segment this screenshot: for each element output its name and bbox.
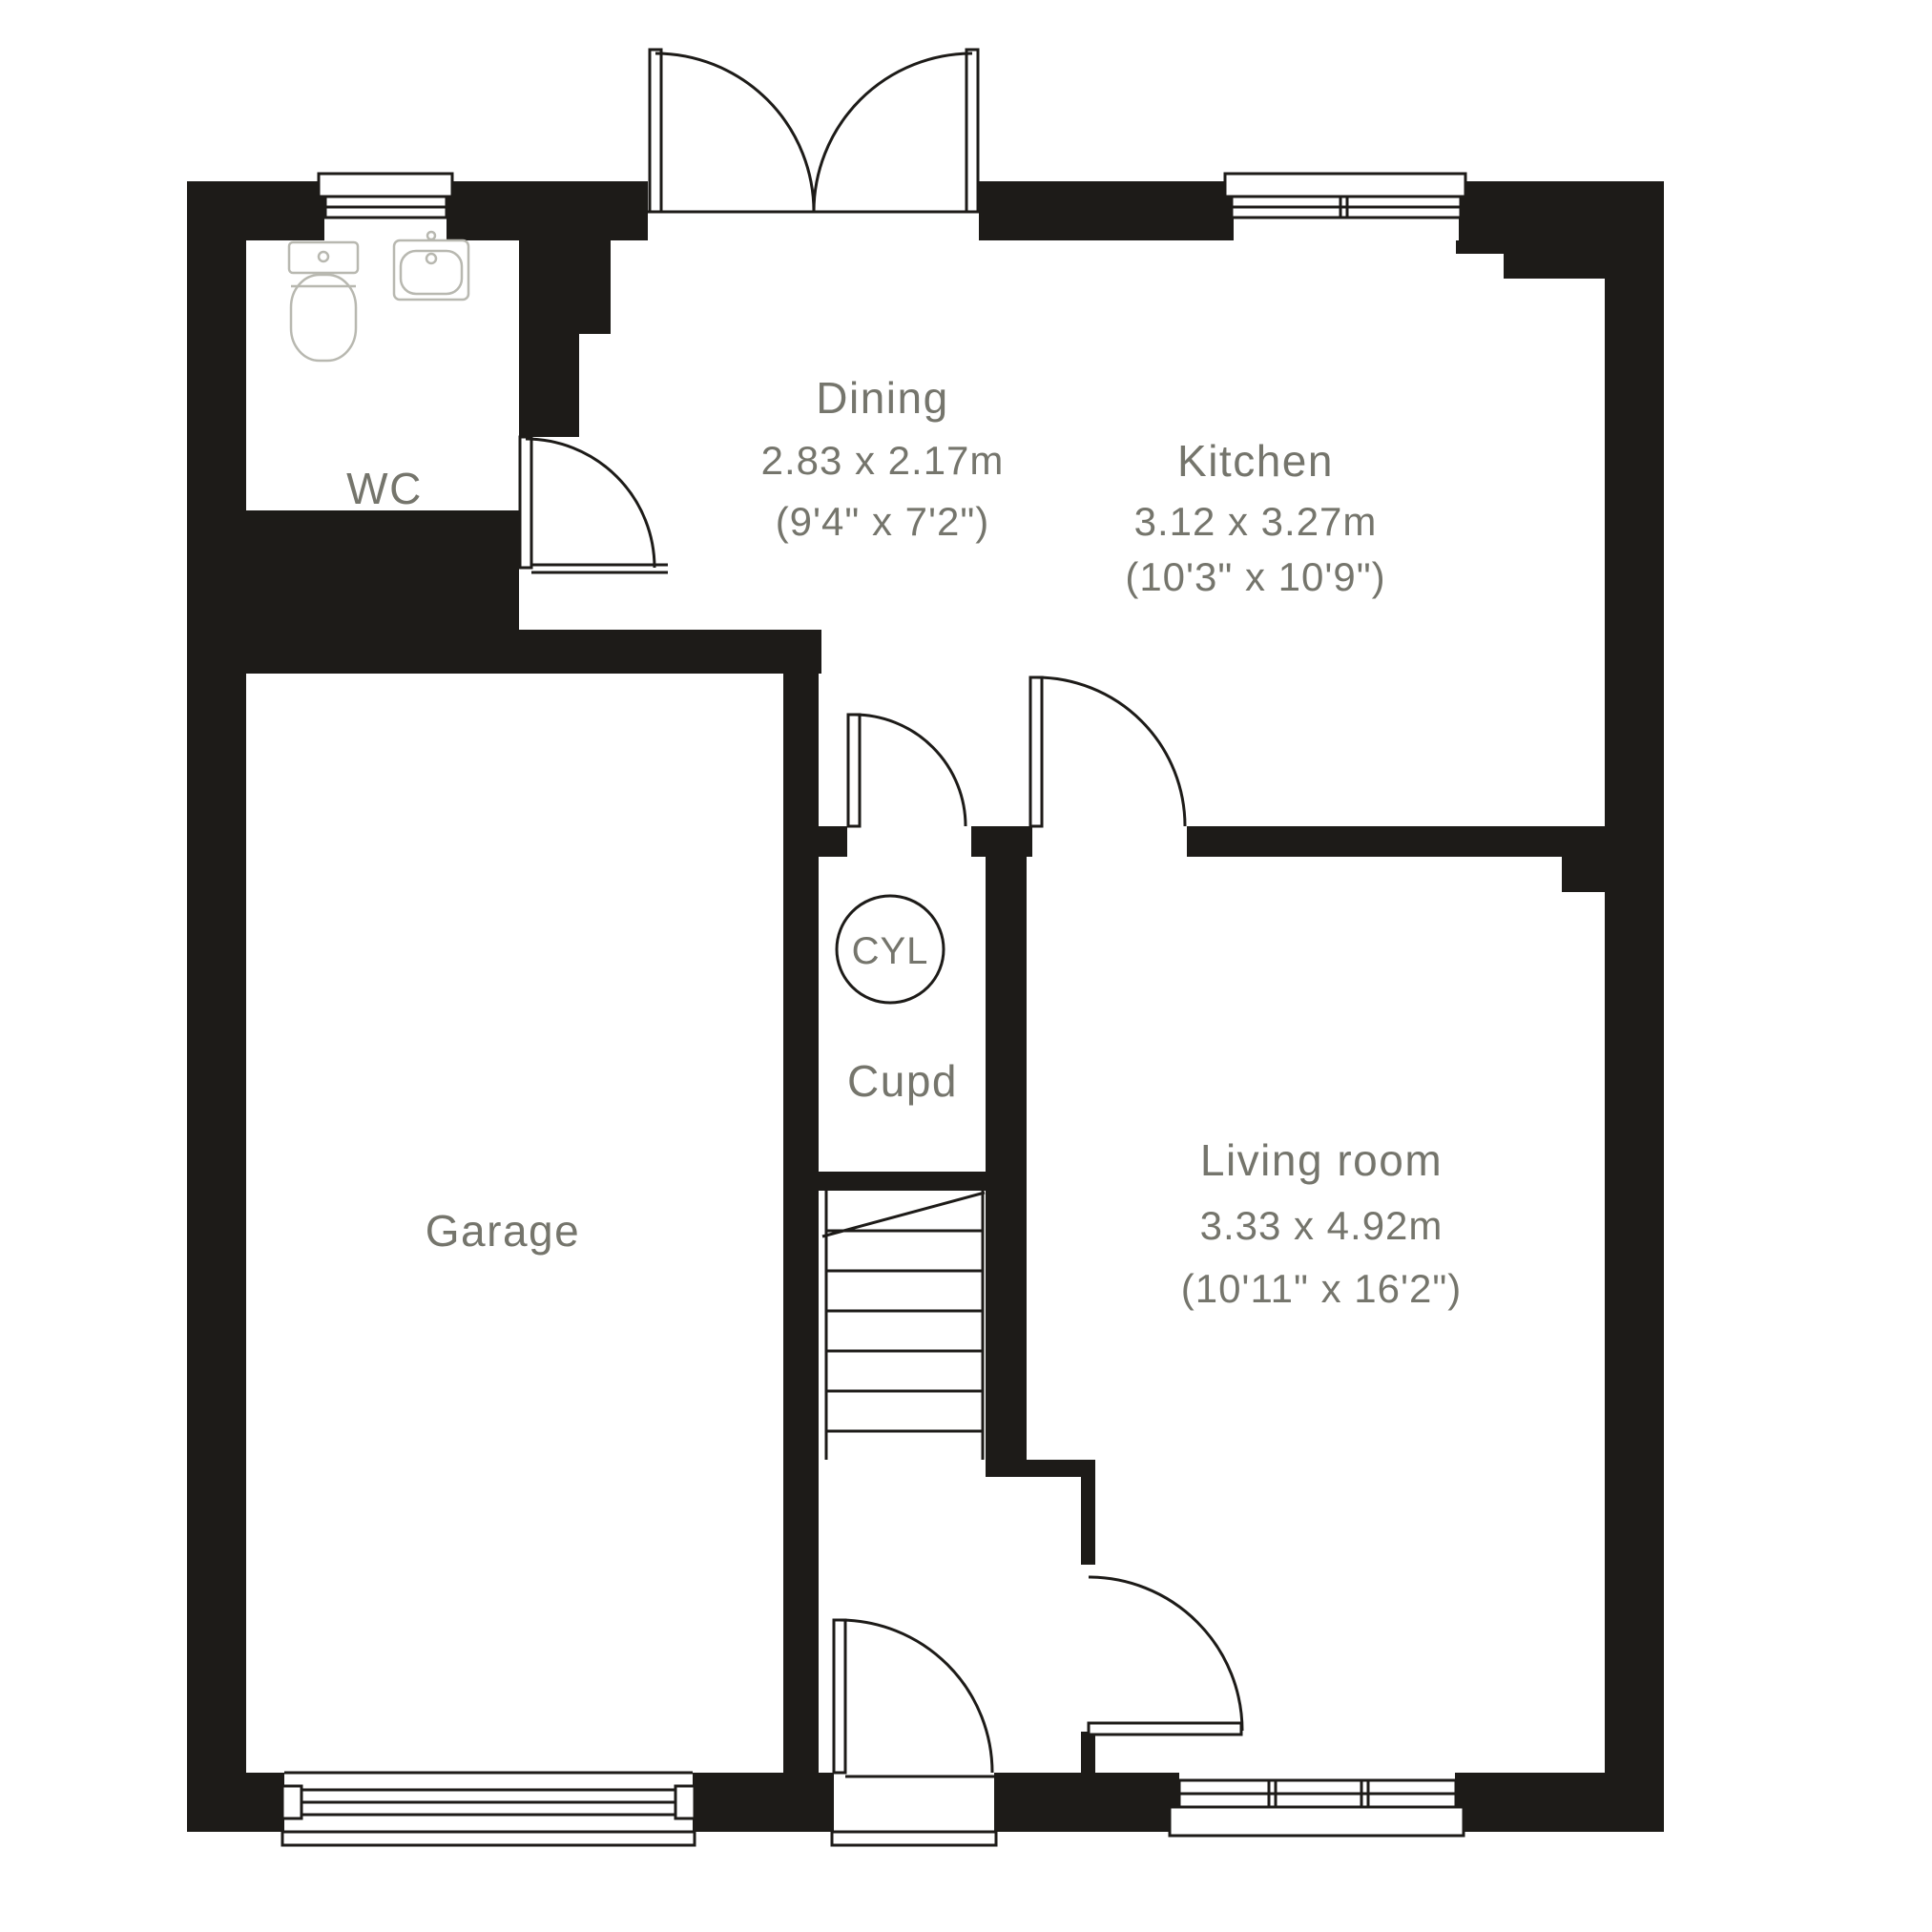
wall-kitchen-living [1187,826,1605,857]
kitchen-door-leaf [1030,677,1042,826]
kitchen-door-arc [1036,677,1185,826]
wall-hall-front-left [1081,1477,1095,1565]
floor-plan-page: CYL WC Dining 2.83 x 2.17m (9'4" x 7'2")… [0,0,1932,1932]
svg-text:(10'11" x 16'2"): (10'11" x 16'2") [1181,1266,1463,1311]
wall-bottom-4 [1455,1773,1664,1832]
cupboard-label: Cupd [847,1056,958,1106]
garage-door [282,1773,695,1845]
wc-door [520,437,668,572]
wall-top-3 [979,181,1234,240]
svg-text:2.83 x 2.17m: 2.83 x 2.17m [761,438,1005,483]
front-door-leaf [834,1620,845,1773]
wall-bottom-1 [187,1773,284,1832]
wall-living-pier [1562,857,1605,892]
cupboard-door-leaf [848,715,860,826]
living-room-door [1089,1577,1242,1735]
cupboard-door [848,715,966,826]
outer-walls [187,181,1664,1832]
wall-bottom-3 [994,1773,1179,1832]
svg-text:3.33 x 4.92m: 3.33 x 4.92m [1200,1203,1444,1248]
french-door-left-leaf [650,50,661,212]
wall-garage-top [187,630,821,674]
sink-icon [394,232,468,300]
wall-hall-top-2 [971,826,1032,857]
wc-label: WC [346,464,423,513]
cylinder-label: CYL [852,930,929,972]
svg-text:Living room: Living room [1200,1135,1443,1185]
svg-text:3.12 x 3.27m: 3.12 x 3.27m [1134,499,1378,544]
wall-wc-bottom [187,510,519,630]
floor-plan: CYL WC Dining 2.83 x 2.17m (9'4" x 7'2")… [0,0,1932,1932]
wc-door-leaf [520,437,531,568]
front-door [832,1620,996,1845]
wall-stairs-step [986,1460,1095,1477]
svg-text:Kitchen: Kitchen [1177,436,1334,486]
svg-text:(9'4" x 7'2"): (9'4" x 7'2") [776,499,990,544]
wall-living-door-stub [1081,1732,1095,1773]
wc-window [319,174,452,218]
svg-text:(10'3" x 10'9"): (10'3" x 10'9") [1125,554,1385,599]
front-door-step [832,1832,996,1845]
cylinder-symbol: CYL [837,896,944,1003]
wall-top-2 [447,181,648,240]
french-doors [648,50,979,212]
wall-right [1605,181,1664,1832]
wc-door-arc [526,439,654,568]
living-room-door-arc [1089,1577,1242,1731]
wall-left [187,181,246,1832]
wall-cupboard-right [986,857,1027,1460]
living-room-window [1170,1780,1464,1836]
kitchen-label: Kitchen 3.12 x 3.27m (10'3" x 10'9") [1125,436,1385,599]
toilet-icon [289,242,358,361]
dining-label: Dining 2.83 x 2.17m (9'4" x 7'2") [761,373,1005,544]
kitchen-window [1225,174,1465,218]
living-room-label: Living room 3.33 x 4.92m (10'11" x 16'2"… [1181,1135,1463,1311]
garage-door-step [282,1832,695,1845]
wall-hall-top-1 [819,826,847,857]
wall-step-topright-b [1504,240,1605,279]
front-door-arc [840,1620,992,1773]
wall-cupboard-bottom [819,1172,986,1191]
french-door-right-arc [814,53,972,212]
wall-bottom-2 [693,1773,834,1832]
garage-label: Garage [426,1206,580,1256]
french-door-right-leaf [966,50,978,212]
wall-garage-right [783,674,819,1773]
french-door-left-arc [655,53,814,212]
wc-fixtures [289,232,468,361]
svg-text:Dining: Dining [816,373,948,423]
kitchen-door [1030,677,1185,826]
cupboard-door-arc [854,715,966,826]
wall-wc-pier [519,240,611,334]
staircase [822,1191,985,1460]
living-room-door-leaf [1089,1723,1241,1735]
windows [319,174,1465,1836]
